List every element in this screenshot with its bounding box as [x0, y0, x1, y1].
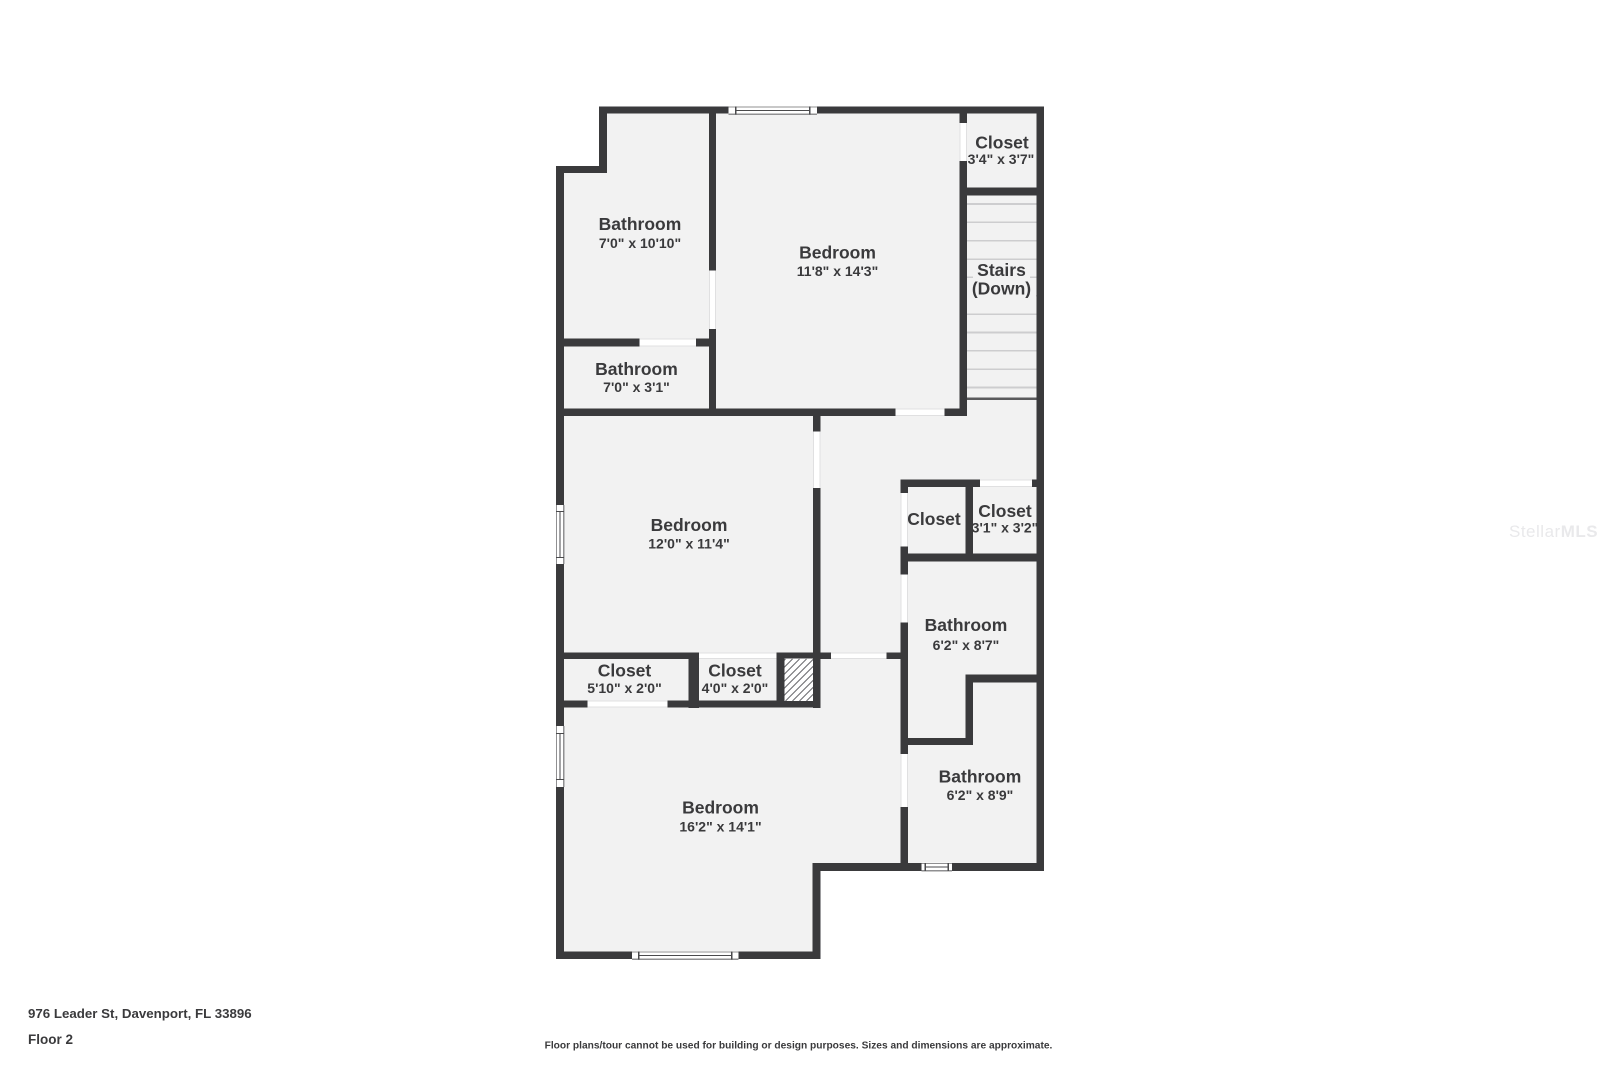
svg-text:Closet: Closet: [978, 501, 1032, 521]
svg-text:11'8" x 14'3": 11'8" x 14'3": [797, 263, 878, 279]
svg-text:Closet: Closet: [708, 661, 762, 681]
svg-text:6'2" x 8'9": 6'2" x 8'9": [947, 787, 1014, 803]
svg-text:5'10" x 2'0": 5'10" x 2'0": [587, 680, 661, 696]
svg-text:Bedroom: Bedroom: [682, 798, 759, 818]
svg-text:3'1" x 3'2": 3'1" x 3'2": [972, 520, 1039, 536]
svg-text:Closet: Closet: [598, 661, 652, 681]
svg-text:Bathroom: Bathroom: [599, 214, 682, 234]
svg-text:Floor plans/tour cannot be use: Floor plans/tour cannot be used for buil…: [545, 1041, 1053, 1052]
svg-text:Bathroom: Bathroom: [925, 615, 1008, 635]
svg-text:Bedroom: Bedroom: [651, 515, 728, 535]
svg-text:Bathroom: Bathroom: [939, 767, 1022, 787]
svg-text:6'2" x 8'7": 6'2" x 8'7": [933, 637, 1000, 653]
svg-text:7'0" x 3'1": 7'0" x 3'1": [603, 379, 670, 395]
svg-text:(Down): (Down): [972, 279, 1031, 299]
svg-text:Bedroom: Bedroom: [799, 243, 876, 263]
svg-text:7'0" x 10'10": 7'0" x 10'10": [599, 235, 681, 251]
svg-text:Bathroom: Bathroom: [595, 359, 678, 379]
svg-text:3'4" x 3'7": 3'4" x 3'7": [968, 151, 1035, 167]
svg-text:16'2" x 14'1": 16'2" x 14'1": [679, 819, 761, 835]
svg-text:4'0" x 2'0": 4'0" x 2'0": [702, 680, 769, 696]
svg-text:Floor 2: Floor 2: [28, 1032, 73, 1047]
svg-text:Closet: Closet: [907, 509, 961, 529]
svg-text:12'0" x 11'4": 12'0" x 11'4": [648, 536, 729, 552]
svg-text:StellarMLS: StellarMLS: [1509, 522, 1598, 541]
svg-text:Stairs: Stairs: [977, 260, 1026, 280]
svg-text:976 Leader St, Davenport, FL 3: 976 Leader St, Davenport, FL 33896: [28, 1006, 252, 1021]
svg-text:Closet: Closet: [975, 133, 1029, 153]
